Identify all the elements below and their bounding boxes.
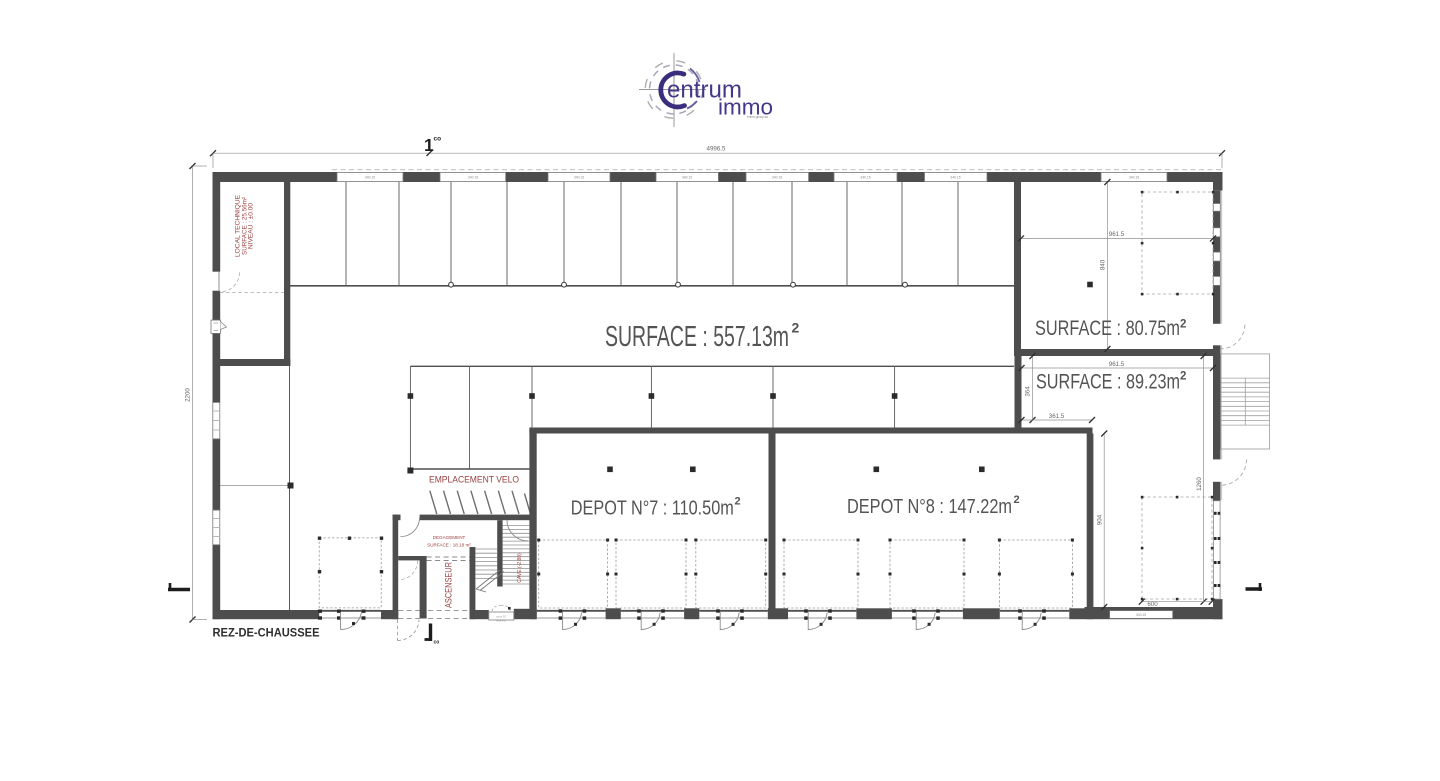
svg-text:600: 600: [1147, 601, 1158, 608]
svg-text:seuil ext: seuil ext: [496, 619, 506, 623]
svg-text:REZ-DE-CHAUSSEE: REZ-DE-CHAUSSEE: [213, 626, 320, 640]
svg-text:immo group sa: immo group sa: [747, 115, 768, 119]
svg-text:EMPLACEMENT VELO: EMPLACEMENT VELO: [429, 475, 519, 486]
svg-text:DEPOT N°7 : 110.50m: DEPOT N°7 : 110.50m: [571, 497, 734, 520]
svg-text:2: 2: [1014, 494, 1020, 506]
svg-text:840: 840: [1100, 259, 1107, 270]
svg-text:LOCAL TECHNIQUE: LOCAL TECHNIQUE: [236, 195, 242, 257]
svg-text:co: co: [434, 136, 442, 143]
svg-text:340.15: 340.15: [1129, 176, 1139, 180]
svg-text:904: 904: [1096, 514, 1103, 525]
svg-text:NIVEAU : ±0.00: NIVEAU : ±0.00: [249, 202, 255, 249]
svg-text:SURFACE : 80.75m: SURFACE : 80.75m: [1035, 316, 1180, 340]
svg-text:1: 1: [424, 135, 434, 155]
svg-text:SURFACE : 18.18 m²: SURFACE : 18.18 m²: [427, 543, 471, 548]
svg-text:340.15: 340.15: [682, 176, 692, 180]
svg-text:DEGAGEMENT: DEGAGEMENT: [433, 535, 466, 540]
svg-text:ASCENSEUR: ASCENSEUR: [444, 562, 455, 608]
svg-text:2: 2: [1180, 319, 1186, 331]
svg-text:SURFACE : 89.23m: SURFACE : 89.23m: [1036, 370, 1180, 394]
svg-text:961.5: 961.5: [1109, 231, 1125, 238]
svg-text:4996.5: 4996.5: [707, 146, 726, 153]
svg-text:2: 2: [735, 496, 741, 508]
svg-text:340.15: 340.15: [950, 176, 960, 180]
svg-text:porte 93: porte 93: [496, 615, 506, 619]
svg-text:SURFACE : 557.13m: SURFACE : 557.13m: [605, 321, 789, 353]
svg-text:340.15: 340.15: [468, 176, 478, 180]
svg-text:340.15: 340.15: [772, 176, 782, 180]
svg-text:340.15: 340.15: [860, 176, 870, 180]
svg-text:340.15: 340.15: [574, 176, 584, 180]
svg-text:DEPOT N°8 : 147.22m: DEPOT N°8 : 147.22m: [847, 495, 1012, 518]
svg-text:340.15: 340.15: [1136, 613, 1146, 617]
svg-text:2: 2: [1180, 371, 1186, 383]
svg-text:340.15: 340.15: [365, 176, 375, 180]
svg-text:2200: 2200: [185, 388, 192, 402]
svg-text:2: 2: [792, 320, 800, 336]
svg-text:CAVE (-2.80): CAVE (-2.80): [517, 553, 523, 583]
svg-text:co: co: [434, 640, 440, 646]
svg-text:364: 364: [1025, 386, 1032, 397]
svg-text:1260: 1260: [1196, 477, 1203, 491]
svg-text:961.5: 961.5: [1109, 361, 1125, 368]
svg-text:361.5: 361.5: [1049, 413, 1065, 420]
